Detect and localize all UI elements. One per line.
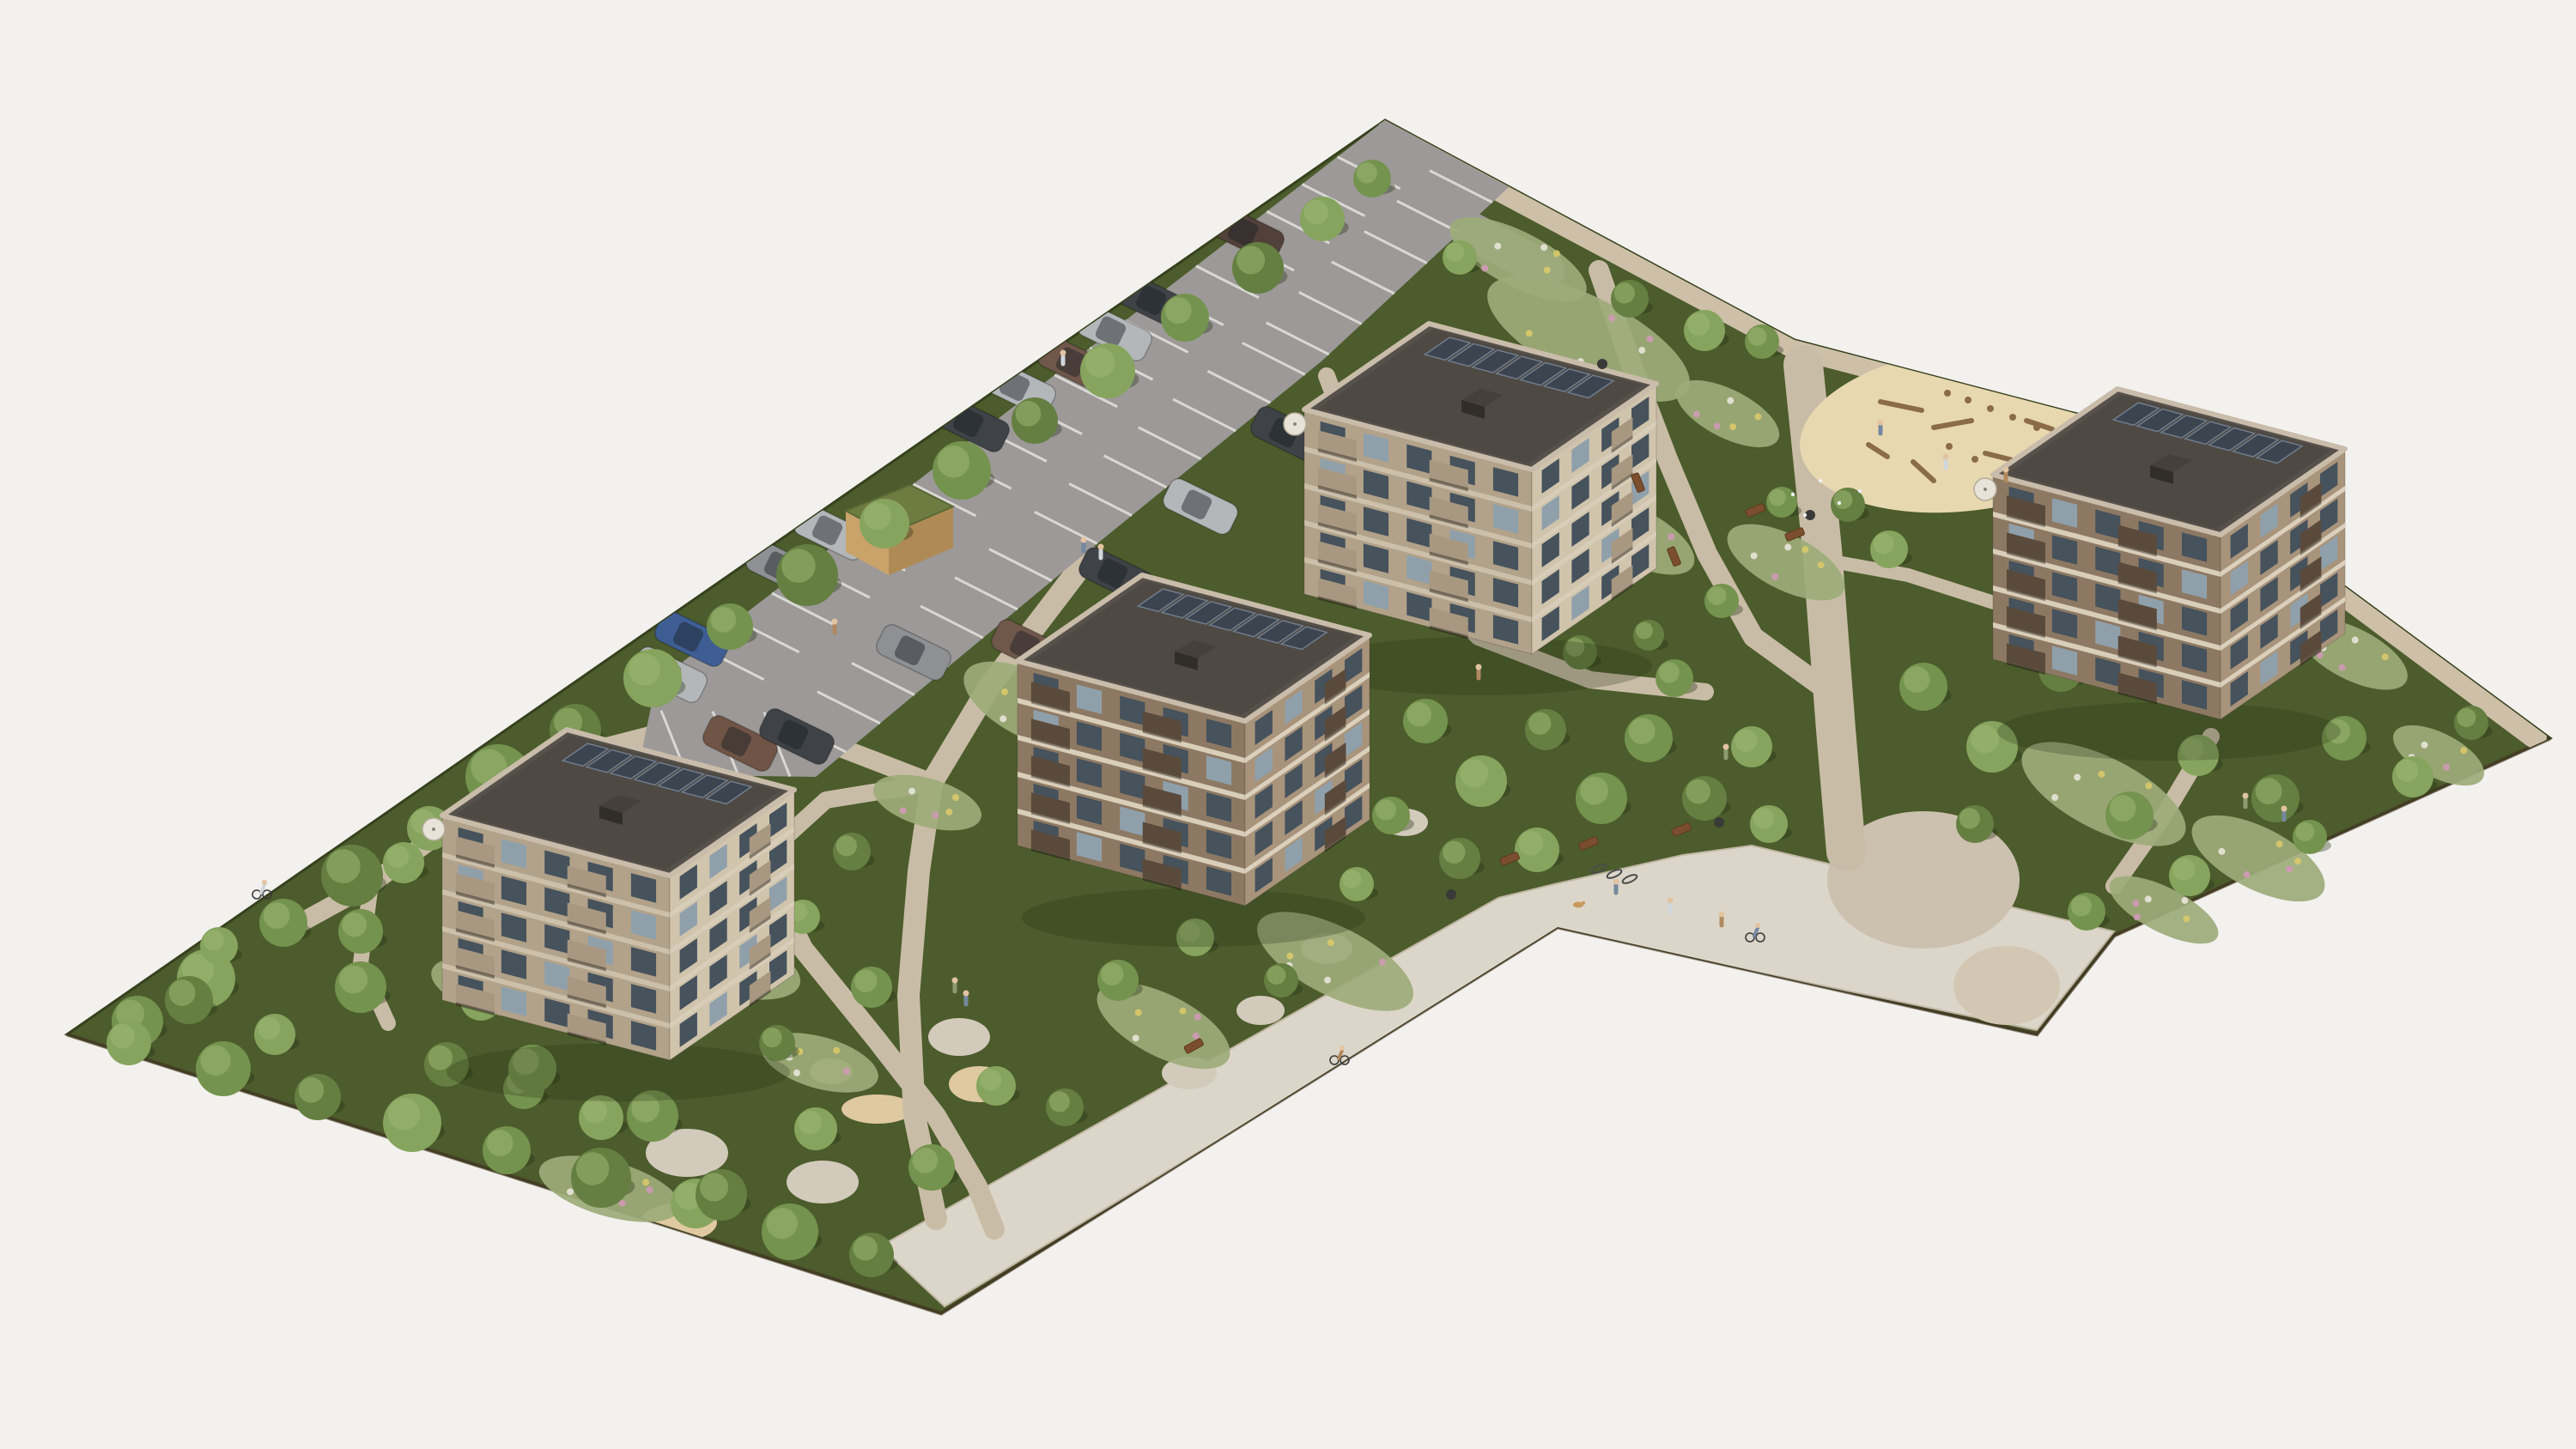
tree-canopy-highlight xyxy=(1101,963,1123,985)
flowers xyxy=(1544,267,1551,274)
flowers xyxy=(793,1070,800,1076)
play-equipment-post xyxy=(1987,405,1994,412)
tree-canopy-highlight xyxy=(854,970,877,992)
cyclist-head xyxy=(262,880,267,885)
person-head xyxy=(1081,537,1087,543)
flowers xyxy=(567,1188,574,1195)
tree-canopy-highlight xyxy=(169,979,196,1006)
tree-canopy-highlight xyxy=(1084,348,1115,378)
flowers xyxy=(843,1068,850,1075)
tree-canopy-highlight xyxy=(428,1046,453,1070)
site-plan-svg xyxy=(0,0,2576,1449)
tree-canopy-highlight xyxy=(1971,725,1999,754)
person-head xyxy=(1943,454,1949,460)
dog-head xyxy=(1582,901,1585,905)
flowers xyxy=(2218,848,2225,855)
parasol-top xyxy=(1984,488,1987,491)
flowers xyxy=(1784,543,1791,550)
person-head xyxy=(1668,898,1674,904)
flowers xyxy=(1324,977,1331,984)
flowers xyxy=(2276,840,2283,847)
play-equipment-post xyxy=(1971,456,1978,463)
flowers xyxy=(1668,533,1674,540)
tree-canopy-highlight xyxy=(1016,401,1042,427)
flowers xyxy=(1286,953,1293,960)
flowers xyxy=(2145,782,2152,789)
flowers xyxy=(933,812,939,819)
tree-canopy-highlight xyxy=(1687,313,1710,336)
tree-canopy-highlight xyxy=(388,1098,420,1130)
tree-canopy-highlight xyxy=(2110,795,2136,822)
tree-canopy-highlight xyxy=(798,1111,822,1135)
tree-canopy-highlight xyxy=(781,549,816,583)
tree-canopy-highlight xyxy=(576,1152,610,1185)
flowers xyxy=(1180,1008,1187,1015)
flowers xyxy=(908,788,915,795)
tree-canopy-highlight xyxy=(204,930,224,950)
tree-canopy-highlight xyxy=(1376,799,1396,820)
bird xyxy=(1803,513,1807,517)
play-equipment-post xyxy=(1946,443,1953,450)
flowers xyxy=(1647,336,1654,343)
tree-canopy-highlight xyxy=(980,1069,1001,1090)
tree-canopy-highlight xyxy=(2256,778,2282,804)
tree-canopy-highlight xyxy=(629,653,660,685)
flowers xyxy=(1693,411,1700,418)
flowers xyxy=(2183,915,2190,922)
tree-canopy-highlight xyxy=(2295,822,2314,841)
tree-canopy-highlight xyxy=(1303,200,1328,225)
tree-canopy-highlight xyxy=(299,1077,325,1103)
bird xyxy=(1791,493,1795,496)
tree-canopy-highlight xyxy=(1445,243,1464,262)
tree-canopy-highlight xyxy=(1707,586,1726,605)
person-head xyxy=(952,978,958,984)
tree-canopy-highlight xyxy=(386,846,409,868)
tree-canopy-highlight xyxy=(913,1148,939,1173)
person-head xyxy=(1060,350,1066,356)
tree-canopy-highlight xyxy=(1614,282,1635,303)
tree-canopy-highlight xyxy=(1406,702,1431,727)
tree-canopy-highlight xyxy=(1636,622,1653,640)
tree-canopy-highlight xyxy=(1443,841,1465,864)
flowers xyxy=(1540,244,1547,251)
person-head xyxy=(1723,744,1729,750)
flowers xyxy=(1638,347,1645,354)
tree-canopy-highlight xyxy=(1528,712,1551,735)
flowers xyxy=(2421,742,2427,749)
tree-canopy-highlight xyxy=(1460,760,1488,788)
flowers xyxy=(2352,637,2359,644)
tree-canopy-highlight xyxy=(1629,718,1656,744)
tree-canopy-highlight xyxy=(1236,246,1265,275)
flowers xyxy=(1379,959,1386,966)
flowers xyxy=(1729,423,1736,430)
tree-canopy-highlight xyxy=(200,1046,230,1076)
tree-canopy-highlight xyxy=(1580,777,1608,805)
tree-canopy-highlight xyxy=(258,1017,280,1040)
tree-canopy-highlight xyxy=(1959,808,1980,828)
flowers xyxy=(2051,794,2058,801)
architectural-rendering xyxy=(0,0,2576,1449)
tree-canopy-highlight xyxy=(582,1099,607,1124)
flowers xyxy=(2286,866,2293,873)
flowers xyxy=(999,715,1006,722)
tree-canopy-highlight xyxy=(1342,870,1361,888)
flowers xyxy=(1818,561,1825,568)
flowers xyxy=(2460,747,2467,754)
flowers xyxy=(1754,413,1761,420)
flowers xyxy=(1193,1033,1200,1040)
flowers xyxy=(1327,939,1334,946)
tree-canopy-highlight xyxy=(2457,708,2476,727)
tree-canopy-highlight xyxy=(1735,730,1757,752)
person-head xyxy=(2281,806,2287,812)
gravel-circle xyxy=(787,1161,859,1203)
flowers xyxy=(2134,913,2141,920)
flowers xyxy=(1001,688,1008,695)
flowers xyxy=(2243,871,2250,878)
person-head xyxy=(2003,467,2009,473)
flowers xyxy=(2382,653,2389,660)
person-head xyxy=(1878,420,1884,426)
flowers xyxy=(1608,315,1615,322)
tree-canopy-highlight xyxy=(2396,760,2418,782)
parasol-top xyxy=(1293,422,1297,426)
trash-bin xyxy=(1446,889,1456,900)
parasol-top xyxy=(432,828,435,831)
bird xyxy=(1858,489,1862,493)
flowers xyxy=(2294,858,2301,864)
flowers xyxy=(1135,1009,1142,1016)
flowers xyxy=(1526,330,1533,336)
tree-canopy-highlight xyxy=(1518,831,1543,856)
person-head xyxy=(1613,879,1619,885)
tree-canopy-highlight xyxy=(767,1208,798,1239)
person-head xyxy=(832,619,838,625)
flowers xyxy=(2181,897,2188,904)
tree-canopy-highlight xyxy=(1686,779,1710,804)
flowers xyxy=(647,1186,653,1193)
person-head xyxy=(1476,664,1482,670)
flowers xyxy=(1801,546,1808,553)
person-head xyxy=(1719,912,1725,918)
flowers xyxy=(1194,1014,1201,1021)
tree-canopy-highlight xyxy=(1874,533,1894,554)
flowers xyxy=(1133,1034,1139,1041)
flowers xyxy=(2098,771,2105,778)
flowers xyxy=(1553,250,1560,257)
tree-canopy-highlight xyxy=(264,902,290,929)
tree-canopy-highlight xyxy=(1769,489,1786,506)
building-shadow xyxy=(1997,702,2341,761)
gravel-circle xyxy=(928,1018,990,1056)
flowers xyxy=(2074,773,2081,780)
building-shadow xyxy=(447,1043,790,1101)
tree-canopy-highlight xyxy=(1833,490,1852,509)
bird xyxy=(1838,501,1841,505)
flowers xyxy=(1751,552,1758,559)
building-shadow xyxy=(1022,888,1365,947)
tree-canopy-highlight xyxy=(853,1236,878,1261)
play-equipment-post xyxy=(2033,424,2040,431)
tree-canopy-highlight xyxy=(1753,808,1774,828)
tree-canopy-highlight xyxy=(1049,1091,1070,1112)
tree-canopy-highlight xyxy=(2071,895,2092,916)
flowers xyxy=(1727,397,1734,404)
trash-bin xyxy=(1714,817,1724,828)
flowers xyxy=(952,794,959,801)
play-equipment-post xyxy=(1965,397,1971,403)
tree-canopy-highlight xyxy=(711,607,737,633)
tree-canopy-highlight xyxy=(1267,966,1285,985)
bird xyxy=(1819,479,1822,482)
flowers xyxy=(900,807,907,814)
flowers xyxy=(2145,895,2152,902)
tree-canopy-highlight xyxy=(1659,662,1680,682)
tree-canopy-highlight xyxy=(339,966,368,994)
tree-canopy-highlight xyxy=(342,912,367,937)
flowers xyxy=(1494,243,1501,250)
trash-bin xyxy=(1597,359,1607,369)
play-equipment-post xyxy=(2009,414,2016,421)
flowers xyxy=(1714,422,1721,429)
tree-canopy-highlight xyxy=(762,1028,782,1047)
cyclist-head xyxy=(1340,1046,1345,1051)
cyclist-head xyxy=(1755,923,1760,928)
play-equipment-post xyxy=(1944,390,1951,397)
tree-canopy-highlight xyxy=(1165,297,1192,324)
person-head xyxy=(2243,793,2249,799)
flowers xyxy=(642,1179,649,1185)
flowers xyxy=(1771,573,1778,580)
gravel-circle xyxy=(1236,996,1285,1025)
tree-canopy-highlight xyxy=(700,1173,728,1202)
flowers xyxy=(2339,664,2346,671)
flowers xyxy=(2132,900,2139,906)
tree-canopy-highlight xyxy=(326,849,361,883)
flowers xyxy=(833,1047,840,1054)
tree-canopy-highlight xyxy=(1357,162,1377,183)
flowers xyxy=(945,809,952,815)
person-head xyxy=(963,991,969,997)
tree-canopy-highlight xyxy=(864,502,891,530)
person-head xyxy=(1098,544,1104,550)
flowers xyxy=(2443,764,2450,771)
tree-canopy-highlight xyxy=(110,1024,135,1049)
tree-canopy-highlight xyxy=(836,835,857,856)
flowers xyxy=(1481,265,1488,272)
tree-canopy-highlight xyxy=(1747,327,1766,346)
tree-canopy-highlight xyxy=(938,446,969,477)
tree-canopy-highlight xyxy=(2172,858,2195,881)
tree-canopy-highlight xyxy=(487,1130,513,1156)
tree-canopy-highlight xyxy=(1904,666,1930,693)
plaza-circle-small xyxy=(1953,946,2060,1025)
